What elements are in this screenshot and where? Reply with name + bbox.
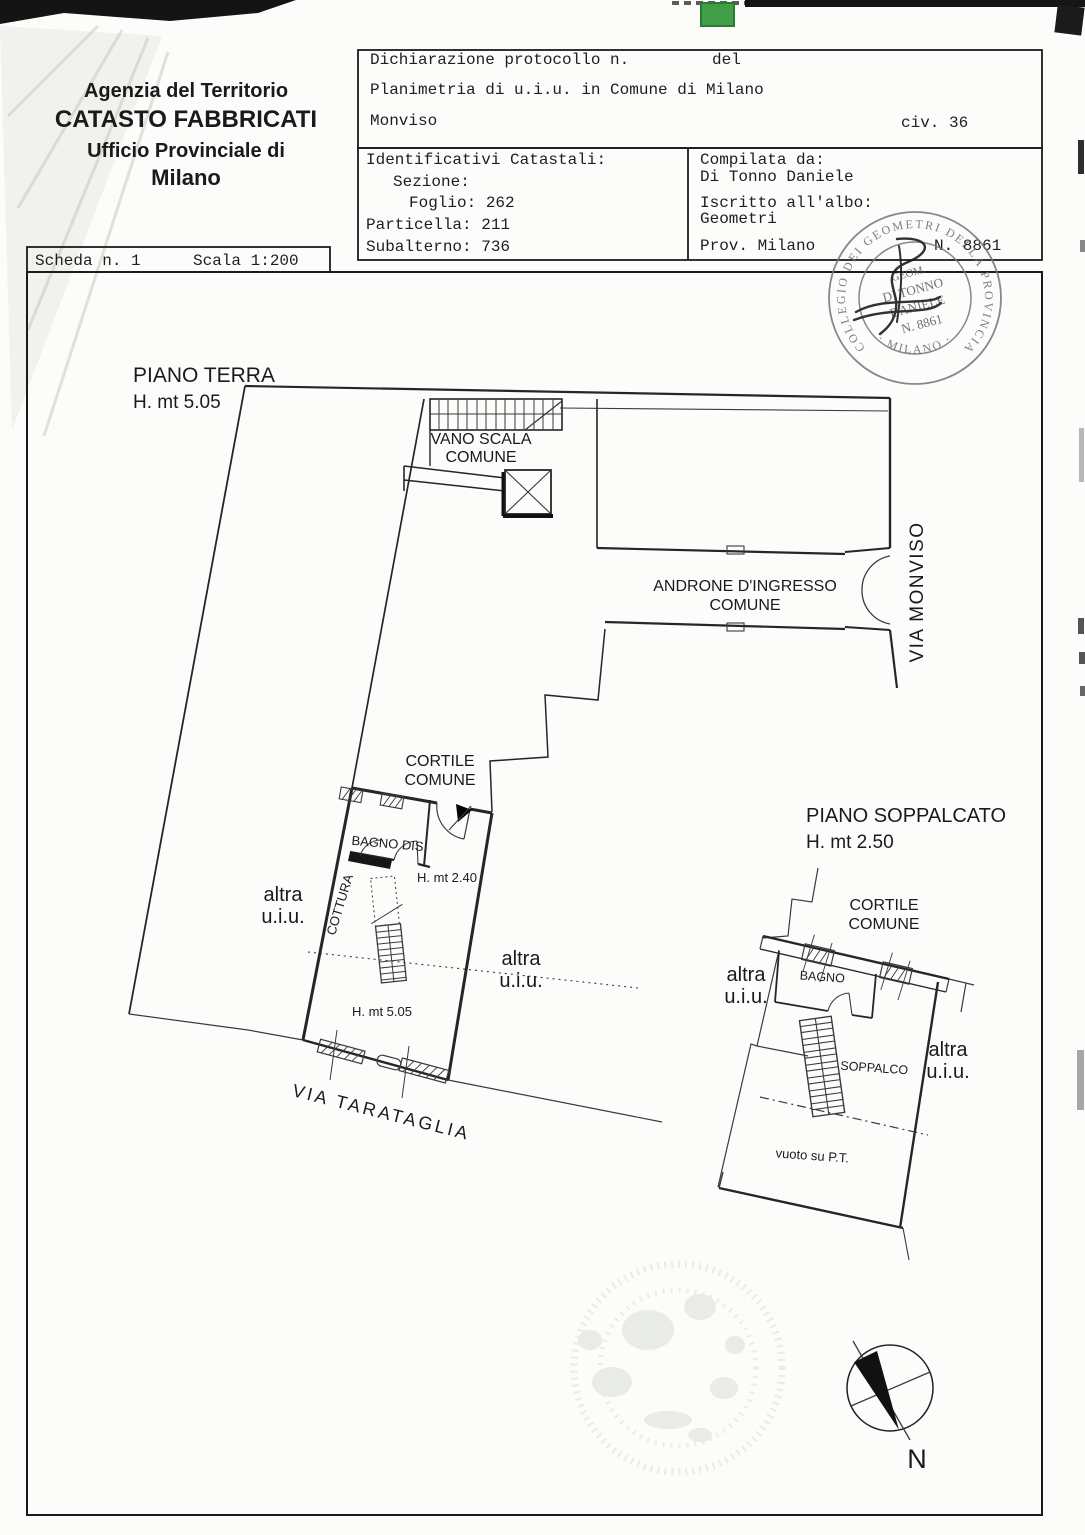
scan-corner-blob <box>1054 5 1084 36</box>
cortile-label: CORTILE <box>405 753 474 770</box>
foglio-field: Foglio: 262 <box>409 194 515 212</box>
declaration-box: Dichiarazione protocollo n. del Planimet… <box>358 50 1042 148</box>
androne-label2: COMUNE <box>709 597 780 614</box>
altra-right-label2: u.i.u. <box>499 970 542 992</box>
particella-field: Particella: 211 <box>366 216 510 234</box>
h240-label: H. mt 2.40 <box>417 870 477 885</box>
scan-corner-mark <box>0 0 296 24</box>
north-compass: N <box>847 1341 933 1474</box>
office-city: Milano <box>151 165 221 190</box>
green-mark <box>701 3 734 26</box>
cortile-label2: COMUNE <box>404 772 475 789</box>
altra-right-label: altra <box>502 948 542 970</box>
elevator <box>503 470 553 516</box>
mezz-altra-right-label2: u.i.u. <box>926 1061 969 1083</box>
agency-name: Agenzia del Territorio <box>84 80 288 102</box>
entrance-doors <box>862 556 890 624</box>
vano-scala-label: VANO SCALA <box>430 431 531 448</box>
mezz-stair <box>799 1016 844 1117</box>
androne-label: ANDRONE D'INGRESSO <box>653 578 837 595</box>
stairwell: VANO SCALA COMUNE <box>404 399 562 491</box>
mezz-cortile-label2: COMUNE <box>848 916 919 933</box>
mezz-altra-left-label: altra <box>727 964 767 986</box>
scanned-cadastral-document: Agenzia del Territorio CATASTO FABBRICAT… <box>0 0 1085 1535</box>
piano-terra-title: PIANO TERRA <box>133 364 275 387</box>
piano-terra-height: H. mt 5.05 <box>133 392 221 413</box>
scan-top-bar <box>745 0 1085 7</box>
unit-stair <box>367 876 411 984</box>
via-monviso-label: VIA MONVISO <box>907 521 928 662</box>
soppalco-label: SOPPALCO <box>840 1059 909 1078</box>
office-line: Ufficio Provinciale di <box>87 140 285 162</box>
scan-edge-marks <box>1077 140 1085 1110</box>
ground-floor-plan: PIANO TERRA H. mt 5.05 <box>129 364 928 1144</box>
albo-value: Geometri <box>700 210 777 228</box>
street-name: Monviso <box>370 112 437 130</box>
protocol-del: del <box>712 51 741 69</box>
compass-needle <box>854 1351 899 1430</box>
h505-label: H. mt 5.05 <box>352 1004 412 1019</box>
mezz-bagno-label: BAGNO <box>799 968 845 985</box>
document-canvas: Agenzia del Territorio CATASTO FABBRICAT… <box>0 0 1085 1535</box>
subalterno-field: Subalterno: 736 <box>366 238 510 256</box>
scala-label: Scala 1:200 <box>193 252 299 270</box>
civic-number: civ. 36 <box>901 114 968 132</box>
mezzanine-plan: PIANO SOPPALCATO H. mt 2.50 CORTILE COMU… <box>718 805 1006 1260</box>
scheda-label: Scheda n. 1 <box>35 252 141 270</box>
mezzanine-projection-line <box>308 952 638 988</box>
faint-stamp <box>574 1264 782 1472</box>
prov-line: Prov. Milano <box>700 237 815 255</box>
facade-ticks <box>330 1030 409 1098</box>
sezione-field: Sezione: <box>393 173 470 191</box>
via-tarataglia-label: VIA TARATAGLIA <box>290 1080 472 1144</box>
mezz-bagno-room: BAGNO <box>775 951 876 1018</box>
vano-scala-label2: COMUNE <box>445 449 516 466</box>
altra-left-label2: u.i.u. <box>261 906 304 928</box>
mezz-altra-right-label: altra <box>929 1039 969 1061</box>
ground-walls <box>129 386 897 1122</box>
altra-left-label: altra <box>264 884 304 906</box>
compass-circle <box>847 1345 933 1431</box>
soppalcato-height: H. mt 2.50 <box>806 832 894 853</box>
compiler-name: Di Tonno Daniele <box>700 168 854 186</box>
soppalcato-title: PIANO SOPPALCATO <box>806 805 1006 827</box>
protocol-label: Dichiarazione protocollo n. <box>370 51 629 69</box>
planimetria-line: Planimetria di u.i.u. in Comune di Milan… <box>370 81 764 99</box>
professional-stamp: COLLEGIO DEI GEOMETRI DELLA PROVINCIA · … <box>829 212 1001 384</box>
mezz-cortile-label: CORTILE <box>849 897 918 914</box>
cadastral-title: Identificativi Catastali: <box>366 151 606 169</box>
catasto-title: CATASTO FABBRICATI <box>55 106 317 133</box>
subject-unit: BAGNO DIS. <box>303 787 638 1098</box>
compiled-by-label: Compilata da: <box>700 151 825 169</box>
vuoto-label: vuoto su P.T. <box>775 1145 849 1165</box>
mezz-altra-left-label2: u.i.u. <box>724 986 767 1008</box>
stamp-ring-bottom: · MILANO · <box>875 331 955 356</box>
north-label: N <box>907 1444 927 1474</box>
